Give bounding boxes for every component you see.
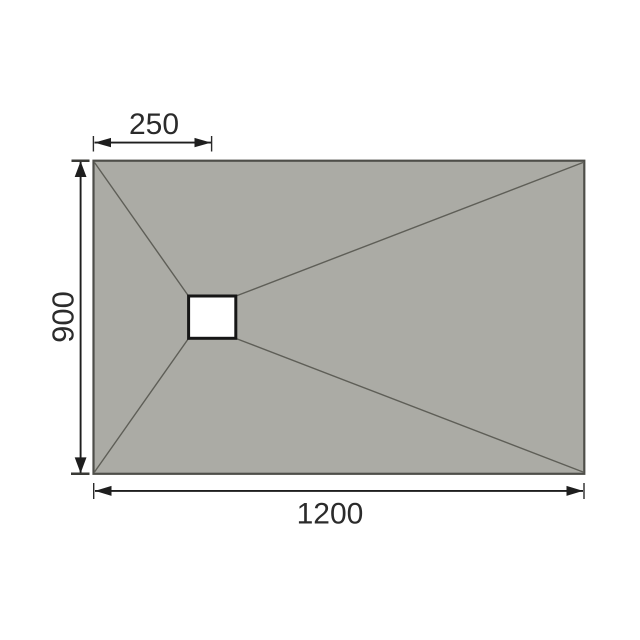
svg-text:1200: 1200: [297, 498, 364, 531]
svg-text:250: 250: [129, 108, 179, 141]
svg-text:900: 900: [46, 291, 81, 343]
